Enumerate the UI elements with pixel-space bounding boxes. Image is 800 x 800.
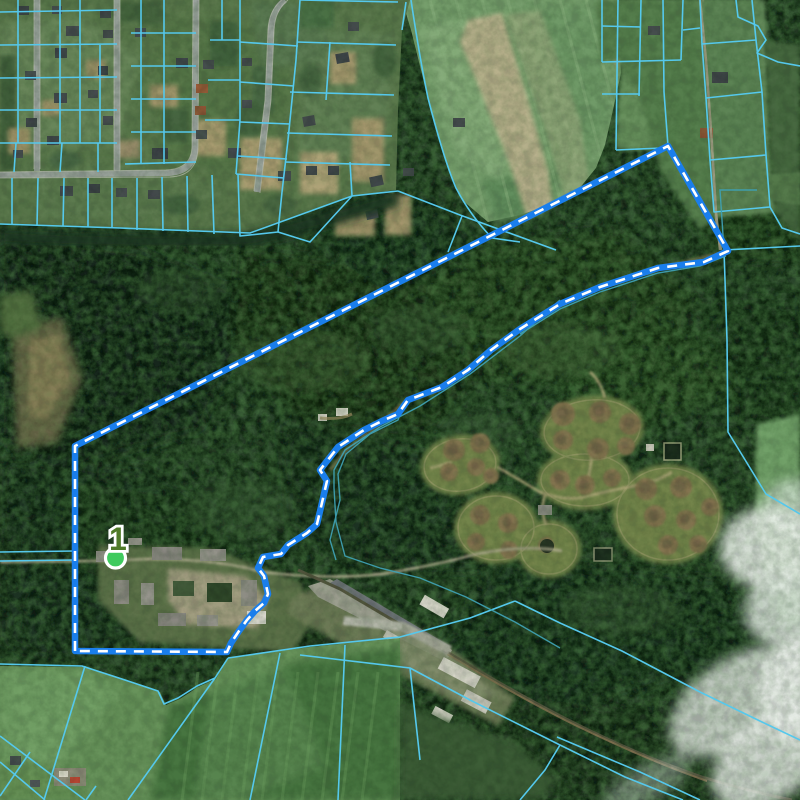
svg-text:1: 1 (109, 521, 127, 557)
